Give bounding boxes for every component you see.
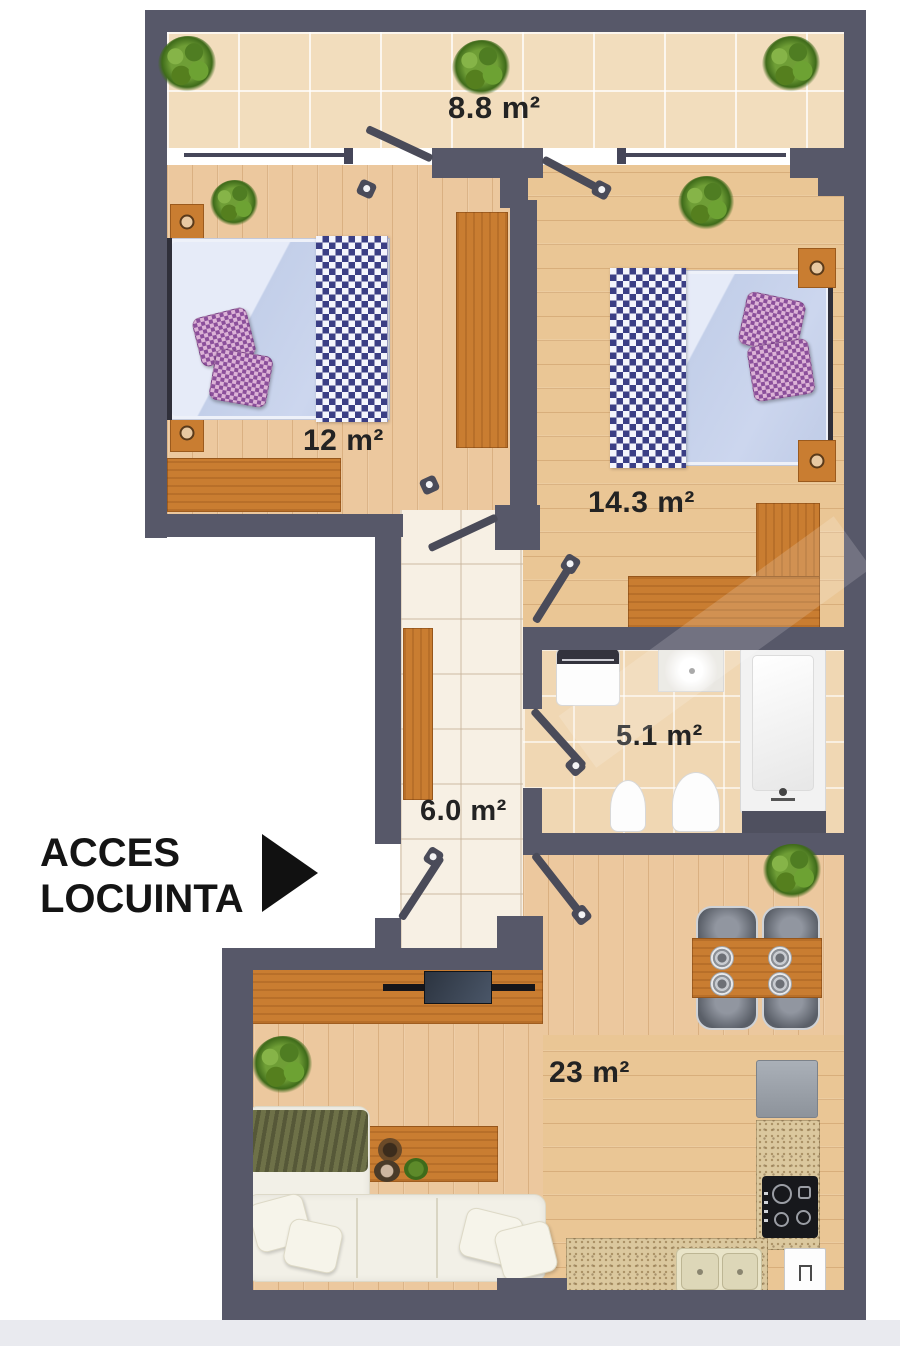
bathtub-faucet-icon (779, 788, 787, 796)
wall (375, 918, 401, 952)
bathtub-basin (752, 655, 814, 791)
bedroom-left-area-label: 12 m² (303, 424, 384, 458)
wall (510, 200, 537, 510)
dishwasher (784, 1248, 826, 1296)
bottom-margin-strip (0, 1320, 900, 1346)
wall (145, 10, 866, 32)
window-glass-left (184, 153, 346, 157)
bedroom-right-area-label: 14.3 m² (588, 486, 695, 520)
access-label: ACCES LOCUINTA (40, 830, 280, 926)
wall (790, 148, 844, 178)
plant (678, 176, 734, 232)
wall (145, 514, 403, 537)
living-area-label: 23 m² (549, 1056, 630, 1090)
floor-plan-canvas: 8.8 m² 12 m² 14.3 m² 5.1 m² 6.0 m² 23 m²… (0, 0, 900, 1346)
plant (762, 844, 822, 900)
stove-knobs (764, 1190, 768, 1222)
fridge (756, 1060, 818, 1118)
plate (710, 946, 734, 970)
pillow (208, 347, 274, 408)
nightstand (798, 248, 836, 288)
plant (762, 36, 820, 94)
wall (497, 916, 543, 950)
plant (158, 36, 216, 94)
bidet (672, 772, 720, 832)
bathtub-faucet-icon (771, 798, 795, 801)
wall (432, 148, 543, 178)
decor-bowl (378, 1138, 402, 1162)
toilet (610, 780, 646, 832)
stove-burner (774, 1212, 789, 1227)
nightstand (798, 440, 836, 482)
sink-basin (722, 1253, 758, 1290)
sofa-cushion-seam (356, 1198, 358, 1278)
pillow (746, 337, 816, 402)
stove (762, 1176, 818, 1238)
kitchen-sink (676, 1248, 762, 1294)
bathtub (740, 645, 826, 815)
sofa-throw-blanket (248, 1110, 368, 1172)
stove-burner (798, 1186, 811, 1199)
washing-machine-panel (557, 649, 619, 664)
tv-base (424, 971, 492, 1004)
wall (222, 948, 543, 970)
bed-runner (610, 268, 686, 468)
access-label-line1: ACCES (40, 830, 180, 876)
plant (210, 180, 258, 228)
bed-runner (316, 236, 388, 422)
sink-basin (681, 1253, 719, 1290)
wall (523, 627, 542, 709)
access-arrow-icon (262, 834, 318, 912)
plate (768, 972, 792, 996)
wall (222, 948, 253, 1310)
bathtub-apron (742, 811, 826, 833)
wall (222, 1290, 866, 1320)
stove-burner (772, 1184, 792, 1204)
wardrobe (456, 212, 508, 448)
bed-headboard (828, 270, 833, 466)
washing-machine-panel-line (562, 659, 614, 661)
plate (768, 946, 792, 970)
rug (167, 458, 341, 512)
hall-cabinet (403, 628, 433, 800)
window-glass-right (622, 153, 786, 157)
plate (710, 972, 734, 996)
sofa-cushion-seam (436, 1198, 438, 1278)
wall (497, 1278, 567, 1294)
dishwasher-glyph-icon (799, 1265, 812, 1281)
decor-bowl (374, 1160, 400, 1182)
wall (375, 537, 401, 844)
stove-burner (796, 1210, 811, 1225)
nightstand (170, 204, 204, 240)
access-label-line2: LOCUINTA (40, 876, 244, 922)
plant (252, 1036, 312, 1096)
balcony-area-label: 8.8 m² (448, 90, 541, 126)
wall (495, 505, 540, 550)
tv-sideboard (248, 966, 543, 1024)
wall (844, 10, 866, 1320)
wall (145, 150, 167, 538)
decor-plant (404, 1158, 428, 1180)
window-handle-left-icon (344, 148, 353, 164)
window-handle-right-icon (617, 148, 626, 164)
hallway-area-label: 6.0 m² (420, 795, 507, 828)
wall (818, 178, 844, 196)
